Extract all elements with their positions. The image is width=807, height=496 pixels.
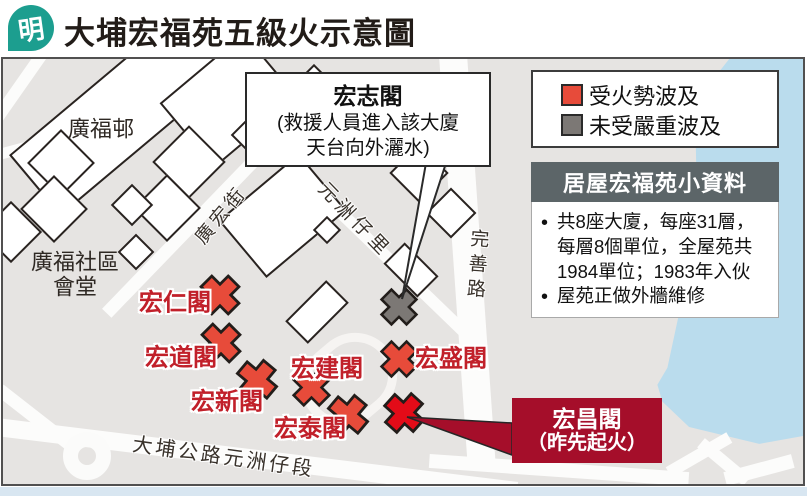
info-bullet-1: 屋苑正做外牆維修 <box>538 284 772 309</box>
mingpao-logo-char: 明 <box>16 8 47 48</box>
building-label-宏道閣: 宏道閣 <box>145 338 217 373</box>
map-canvas: 宏仁閣宏道閣宏新閣宏建閣宏泰閣宏盛閣廣宏街元洲仔里完善路大埔公路元洲仔段廣福邨廣… <box>1 57 805 486</box>
legend-label: 未受嚴重波及 <box>589 109 721 141</box>
legend-rows: 受火勢波及未受嚴重波及 <box>561 80 777 140</box>
mingpao-logo-icon: 明 <box>8 5 54 51</box>
legend-swatch-icon <box>561 114 583 136</box>
building-hong-cheong-kok <box>379 388 429 438</box>
callout-hong-chi-title: 宏志閣 <box>247 77 489 111</box>
callout-hong-cheong: 宏昌閣 （昨先起火） <box>512 398 662 463</box>
callout-hong-cheong-note: （昨先起火） <box>527 432 647 455</box>
legend-swatch-icon <box>561 84 583 106</box>
area-label-廣福社區會堂: 廣福社區 會堂 <box>31 250 119 301</box>
legend-item-1: 未受嚴重波及 <box>561 110 777 140</box>
building-label-宏泰閣: 宏泰閣 <box>274 409 346 444</box>
road <box>1 57 48 130</box>
callout-hong-chi: 宏志閣 (救援人員進入該大廈 天台向外灑水) <box>245 72 491 167</box>
page-title: 大埔宏福苑五級火示意圖 <box>64 8 416 53</box>
building-label-宏新閣: 宏新閣 <box>191 382 263 417</box>
street-label-完善路: 完善路 <box>460 228 492 305</box>
area-label-廣福邨: 廣福邨 <box>68 116 134 141</box>
road <box>723 454 794 486</box>
white-building <box>285 280 349 344</box>
legend-item-0: 受火勢波及 <box>561 80 777 110</box>
info-box: 居屋宏福苑小資料 共8座大廈，每座31層，每層8個單位，全屋苑共1984單位；1… <box>531 162 779 318</box>
info-box-body: 共8座大廈，每座31層，每層8個單位，全屋苑共1984單位；1983年入伙屋苑正… <box>531 202 779 318</box>
legend-label: 受火勢波及 <box>589 79 699 111</box>
building-hong-chi-kok <box>376 284 422 330</box>
callout-hong-cheong-name: 宏昌閣 <box>553 406 622 432</box>
info-box-title: 居屋宏福苑小資料 <box>531 162 779 202</box>
legend: 受火勢波及未受嚴重波及 <box>531 70 779 148</box>
building-label-宏仁閣: 宏仁閣 <box>139 283 211 318</box>
info-bullet-0: 共8座大廈，每座31層，每層8個單位，全屋苑共1984單位；1983年入伙 <box>538 210 772 284</box>
building-label-宏盛閣: 宏盛閣 <box>415 339 487 374</box>
map-inner: 宏仁閣宏道閣宏新閣宏建閣宏泰閣宏盛閣廣宏街元洲仔里完善路大埔公路元洲仔段廣福邨廣… <box>3 59 803 484</box>
callout-hong-chi-body: (救援人員進入該大廈 天台向外灑水) <box>247 111 489 162</box>
building-label-宏建閣: 宏建閣 <box>291 349 363 384</box>
bottom-water-strip <box>0 487 807 496</box>
roundabout <box>63 432 111 480</box>
header: 明 大埔宏福苑五級火示意圖 <box>0 0 807 57</box>
infographic-page: 明 大埔宏福苑五級火示意圖 宏仁閣宏道閣宏新閣宏建閣宏泰閣宏盛閣廣宏街元洲仔里完… <box>0 0 807 496</box>
